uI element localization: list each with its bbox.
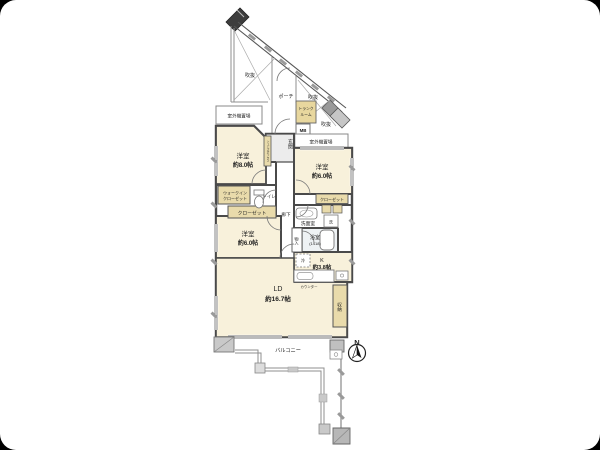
trunk-room-label-2: ルーム bbox=[300, 112, 311, 117]
balcony-rail-outer bbox=[235, 350, 324, 426]
living-dining-label: LD bbox=[274, 286, 283, 293]
kitchen-sink-icon bbox=[297, 273, 313, 280]
futon-storage-label: 物入 bbox=[294, 235, 300, 245]
ac-unit-east-label: 室外機置場 bbox=[310, 139, 333, 146]
closet-west-label: クローゼット bbox=[238, 210, 267, 217]
bedroom-8-label: 洋室 bbox=[237, 151, 251, 160]
walk-in-closet-label-1: ウォークイン bbox=[223, 190, 247, 196]
shoes-box-label: シューズボックス bbox=[266, 140, 269, 162]
meter-box-label: MB bbox=[300, 128, 307, 133]
trunk-room-label-1: トランク bbox=[298, 106, 313, 111]
living-storage-label: 収納 bbox=[337, 301, 343, 313]
balcony-rail-inner bbox=[235, 353, 321, 426]
water-heater-box bbox=[330, 350, 342, 359]
bedroom-8-size: 約8.0帖 bbox=[233, 161, 253, 169]
balcony-label: バルコニー bbox=[275, 347, 301, 354]
hallway-label: 廊下 bbox=[281, 211, 291, 218]
walk-in-closet-label-2: クローゼット bbox=[223, 195, 247, 201]
floorplan-page: N ポーチ 吹抜 吹抜 吹抜 室外機置場 室外機置場 トランク ルーム MB 玄… bbox=[0, 0, 600, 450]
bedroom-6-east-size: 約6.0帖 bbox=[312, 172, 332, 180]
toilet-label: トイレ bbox=[262, 194, 276, 199]
bathroom-label: 浴室 bbox=[310, 234, 320, 241]
bathtub-icon bbox=[320, 230, 334, 250]
kitchen-size: 約3.8帖 bbox=[313, 263, 332, 271]
bedroom-6-west-label: 洋室 bbox=[242, 229, 256, 238]
porch-label: ポーチ bbox=[278, 93, 293, 100]
void-west-label: 吹抜 bbox=[245, 72, 255, 79]
void-center-label: 吹抜 bbox=[308, 94, 318, 101]
bedroom-6-west-size: 約6.0帖 bbox=[238, 239, 258, 247]
bathroom-size: (1418) bbox=[309, 241, 321, 246]
floorplan-svg: N ポーチ 吹抜 吹抜 吹抜 室外機置場 室外機置場 トランク ルーム MB 玄… bbox=[0, 0, 600, 450]
diagonal-hatch-ticks bbox=[248, 33, 335, 102]
void-east-label: 吹抜 bbox=[321, 121, 331, 128]
stove-box bbox=[336, 271, 348, 280]
washroom-label: 洗面室 bbox=[301, 220, 316, 227]
ac-unit-west-label: 室外機置場 bbox=[228, 113, 251, 120]
bedroom-6-east-label: 洋室 bbox=[316, 162, 330, 171]
trunk-room-box bbox=[296, 101, 316, 123]
washer-label: 洗 bbox=[329, 219, 333, 225]
counter-label: カウンター bbox=[301, 284, 319, 289]
refrigerator-label: 冷 bbox=[301, 257, 305, 264]
bedroom-6-east-room bbox=[294, 148, 352, 194]
compass: N bbox=[349, 338, 366, 362]
entrance-door-arc bbox=[275, 119, 290, 134]
living-dining-size: 約16.7帖 bbox=[265, 294, 291, 303]
closet-east-label: クローゼット bbox=[320, 196, 344, 202]
utility-box-2 bbox=[333, 205, 342, 213]
entrance-label: 玄関 bbox=[287, 138, 293, 150]
porch-door-arc bbox=[277, 68, 290, 81]
utility-box-1 bbox=[322, 205, 331, 213]
kitchen-label: K bbox=[320, 258, 324, 264]
